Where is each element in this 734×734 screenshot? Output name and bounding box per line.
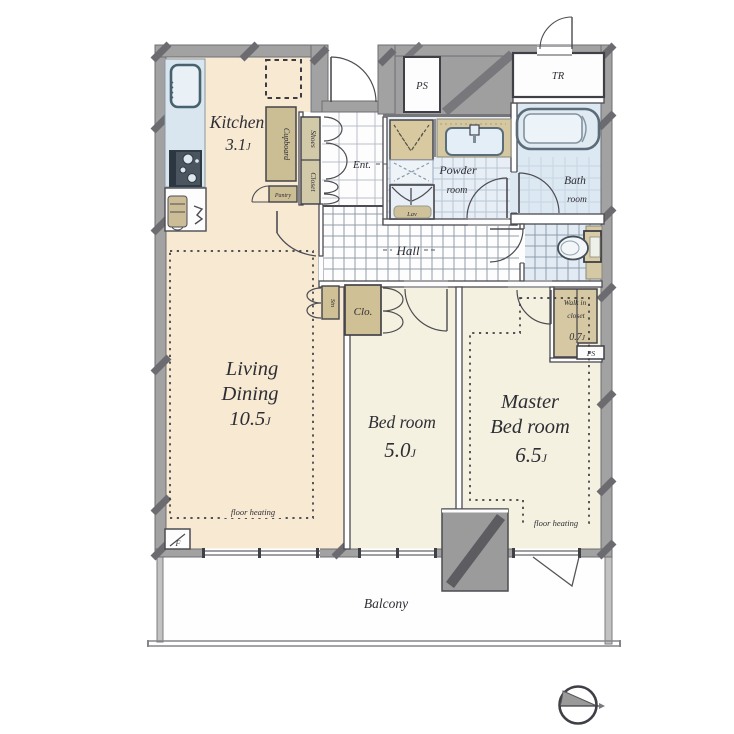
svg-text:Dining: Dining bbox=[221, 383, 279, 405]
svg-text:Bed room: Bed room bbox=[490, 416, 570, 438]
svg-text:Kitchen: Kitchen bbox=[209, 112, 265, 132]
svg-text:PS: PS bbox=[586, 349, 596, 358]
svg-text:Master: Master bbox=[500, 391, 560, 413]
svg-text:Clo.: Clo. bbox=[354, 306, 373, 318]
svg-text:Walk in: Walk in bbox=[564, 298, 587, 307]
svg-text:Cupboard: Cupboard bbox=[282, 128, 291, 161]
svg-text:floor heating: floor heating bbox=[534, 518, 578, 528]
svg-text:F: F bbox=[175, 539, 181, 548]
svg-text:Balcony: Balcony bbox=[364, 596, 408, 611]
svg-text:Shoes: Shoes bbox=[309, 130, 318, 148]
svg-text:Bath: Bath bbox=[564, 175, 586, 187]
svg-text:room: room bbox=[447, 185, 468, 196]
svg-text:closet: closet bbox=[567, 311, 585, 320]
svg-text:Hall: Hall bbox=[395, 243, 420, 258]
svg-text:Stn: Stn bbox=[329, 299, 336, 307]
svg-text:Ent.: Ent. bbox=[352, 159, 371, 171]
svg-text:Pantry: Pantry bbox=[274, 193, 292, 199]
svg-text:floor heating: floor heating bbox=[231, 507, 275, 517]
svg-text:Living: Living bbox=[225, 358, 278, 380]
svg-text:0.7J: 0.7J bbox=[569, 332, 586, 343]
svg-text:Bed room: Bed room bbox=[368, 412, 436, 432]
svg-text:10.5J: 10.5J bbox=[229, 408, 271, 430]
svg-text:room: room bbox=[567, 195, 587, 205]
svg-text:Lav: Lav bbox=[406, 211, 417, 218]
svg-text:PS: PS bbox=[415, 81, 428, 92]
svg-text:TR: TR bbox=[552, 71, 565, 82]
svg-text:Closet: Closet bbox=[309, 172, 318, 192]
svg-text:Powder: Powder bbox=[438, 163, 477, 177]
